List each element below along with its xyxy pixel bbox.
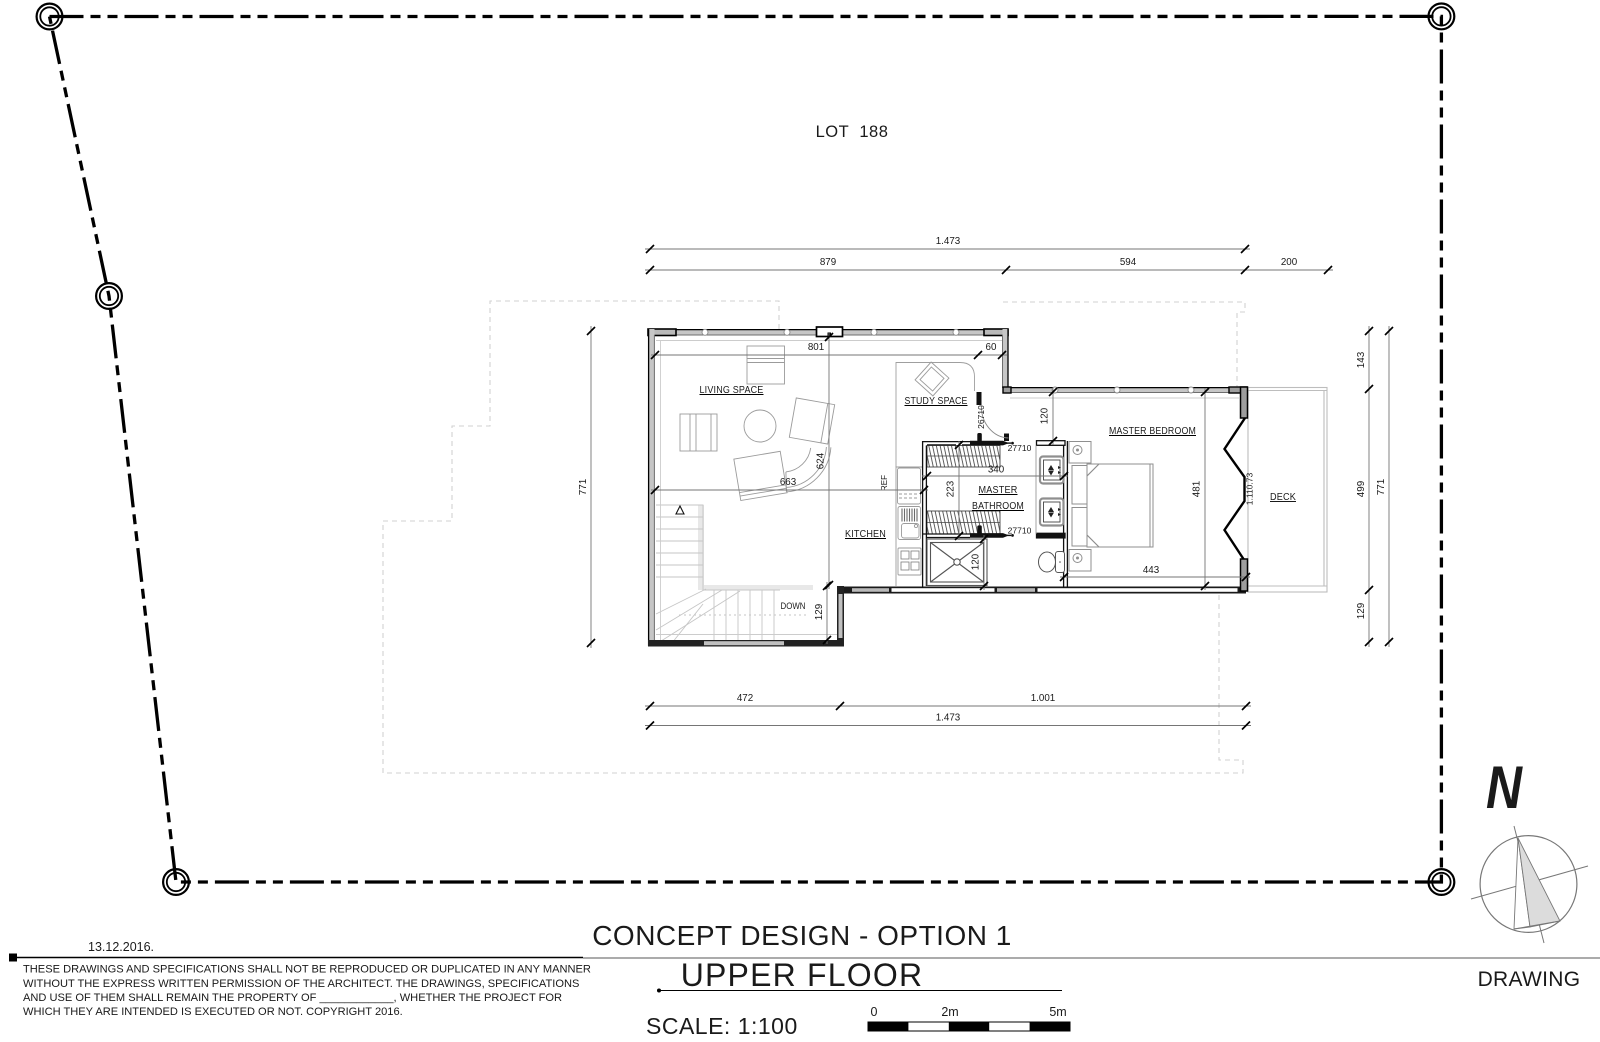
svg-text:WITHOUT THE EXPRESS WRITTEN PE: WITHOUT THE EXPRESS WRITTEN PERMISSION O… bbox=[23, 978, 579, 990]
svg-text:WHICH THEY ARE INTENDED IS EXE: WHICH THEY ARE INTENDED IS EXECUTED OR N… bbox=[23, 1006, 403, 1018]
svg-text:879: 879 bbox=[820, 257, 836, 268]
svg-text:UPPER FLOOR: UPPER FLOOR bbox=[681, 957, 924, 993]
svg-text:223: 223 bbox=[946, 480, 957, 497]
svg-text:DOWN: DOWN bbox=[781, 601, 806, 611]
svg-text:MASTER: MASTER bbox=[979, 485, 1018, 496]
svg-text:1.473: 1.473 bbox=[936, 236, 961, 247]
svg-text:26710: 26710 bbox=[976, 405, 986, 429]
svg-text:2m: 2m bbox=[941, 1005, 958, 1019]
svg-text:129: 129 bbox=[814, 604, 825, 620]
svg-text:REF: REF bbox=[880, 475, 889, 491]
svg-text:481: 481 bbox=[1192, 481, 1203, 497]
svg-text:120: 120 bbox=[1040, 407, 1051, 424]
svg-text:DRAWING: DRAWING bbox=[1478, 968, 1581, 991]
svg-text:13.12.2016.: 13.12.2016. bbox=[88, 940, 154, 954]
svg-text:N: N bbox=[1486, 754, 1523, 821]
svg-text:1.001: 1.001 bbox=[1031, 693, 1056, 704]
svg-text:472: 472 bbox=[737, 693, 753, 704]
svg-text:1.473: 1.473 bbox=[936, 713, 961, 724]
svg-text:663: 663 bbox=[780, 477, 797, 488]
svg-text:LOT 188: LOT 188 bbox=[816, 123, 889, 141]
svg-text:499: 499 bbox=[1356, 481, 1367, 497]
svg-text:340: 340 bbox=[988, 465, 1005, 476]
svg-text:LIVING SPACE: LIVING SPACE bbox=[700, 385, 764, 396]
svg-text:DECK: DECK bbox=[1270, 492, 1296, 503]
svg-text:801: 801 bbox=[808, 342, 824, 353]
svg-text:771: 771 bbox=[1376, 479, 1387, 495]
svg-text:594: 594 bbox=[1120, 257, 1137, 268]
svg-text:1.110.73: 1.110.73 bbox=[1245, 473, 1255, 506]
svg-text:60: 60 bbox=[986, 342, 997, 353]
svg-text:129: 129 bbox=[1356, 603, 1367, 619]
svg-text:0: 0 bbox=[871, 1005, 878, 1019]
svg-text:KITCHEN: KITCHEN bbox=[845, 529, 886, 540]
svg-text:443: 443 bbox=[1143, 565, 1160, 576]
svg-text:120: 120 bbox=[971, 553, 982, 570]
svg-text:BATHROOM: BATHROOM bbox=[972, 501, 1024, 512]
svg-text:200: 200 bbox=[1281, 257, 1298, 268]
svg-text:SCALE: 1:100: SCALE: 1:100 bbox=[646, 1013, 798, 1039]
svg-text:AND USE OF THEM SHALL REMAIN T: AND USE OF THEM SHALL REMAIN THE PROPERT… bbox=[23, 992, 562, 1004]
svg-text:STUDY SPACE: STUDY SPACE bbox=[905, 396, 968, 407]
svg-text:771: 771 bbox=[578, 479, 589, 495]
svg-text:5m: 5m bbox=[1049, 1005, 1066, 1019]
svg-text:THESE DRAWINGS AND SPECIFICATI: THESE DRAWINGS AND SPECIFICATIONS SHALL … bbox=[23, 964, 591, 976]
svg-text:143: 143 bbox=[1356, 351, 1367, 368]
svg-text:624: 624 bbox=[816, 452, 827, 469]
svg-text:CONCEPT DESIGN - OPTION 1: CONCEPT DESIGN - OPTION 1 bbox=[592, 920, 1012, 951]
svg-text:27710: 27710 bbox=[1008, 443, 1032, 453]
svg-text:MASTER BEDROOM: MASTER BEDROOM bbox=[1109, 426, 1196, 437]
svg-text:27710: 27710 bbox=[1008, 526, 1032, 536]
